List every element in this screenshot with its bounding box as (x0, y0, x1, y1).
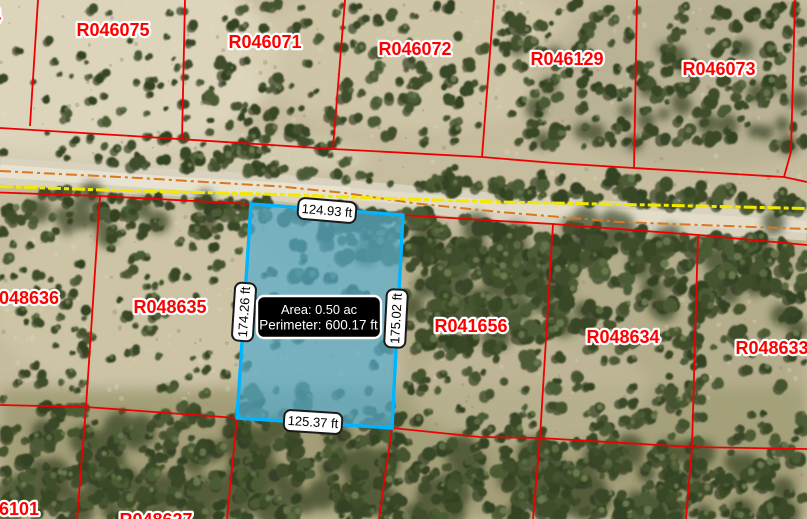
svg-text:Area: 0.50 ac: Area: 0.50 ac (281, 302, 358, 317)
svg-text:Perimeter: 600.17 ft: Perimeter: 600.17 ft (259, 318, 378, 333)
svg-text:R048627: R048627 (119, 510, 192, 519)
svg-text:175.02 ft: 175.02 ft (387, 292, 405, 344)
svg-text:R046129: R046129 (530, 49, 603, 69)
svg-text:R046073: R046073 (682, 59, 755, 79)
svg-text:R046075: R046075 (76, 20, 149, 40)
svg-text:R048636: R048636 (0, 288, 59, 308)
svg-text:R048635: R048635 (133, 297, 206, 317)
svg-text:R046101: R046101 (0, 499, 39, 519)
svg-text:R046071: R046071 (228, 32, 301, 52)
svg-text:4: 4 (0, 6, 1, 26)
svg-text:R048633: R048633 (735, 338, 807, 358)
svg-text:R048634: R048634 (586, 327, 659, 347)
svg-text:R041656: R041656 (434, 316, 507, 336)
svg-text:R046072: R046072 (378, 39, 451, 59)
